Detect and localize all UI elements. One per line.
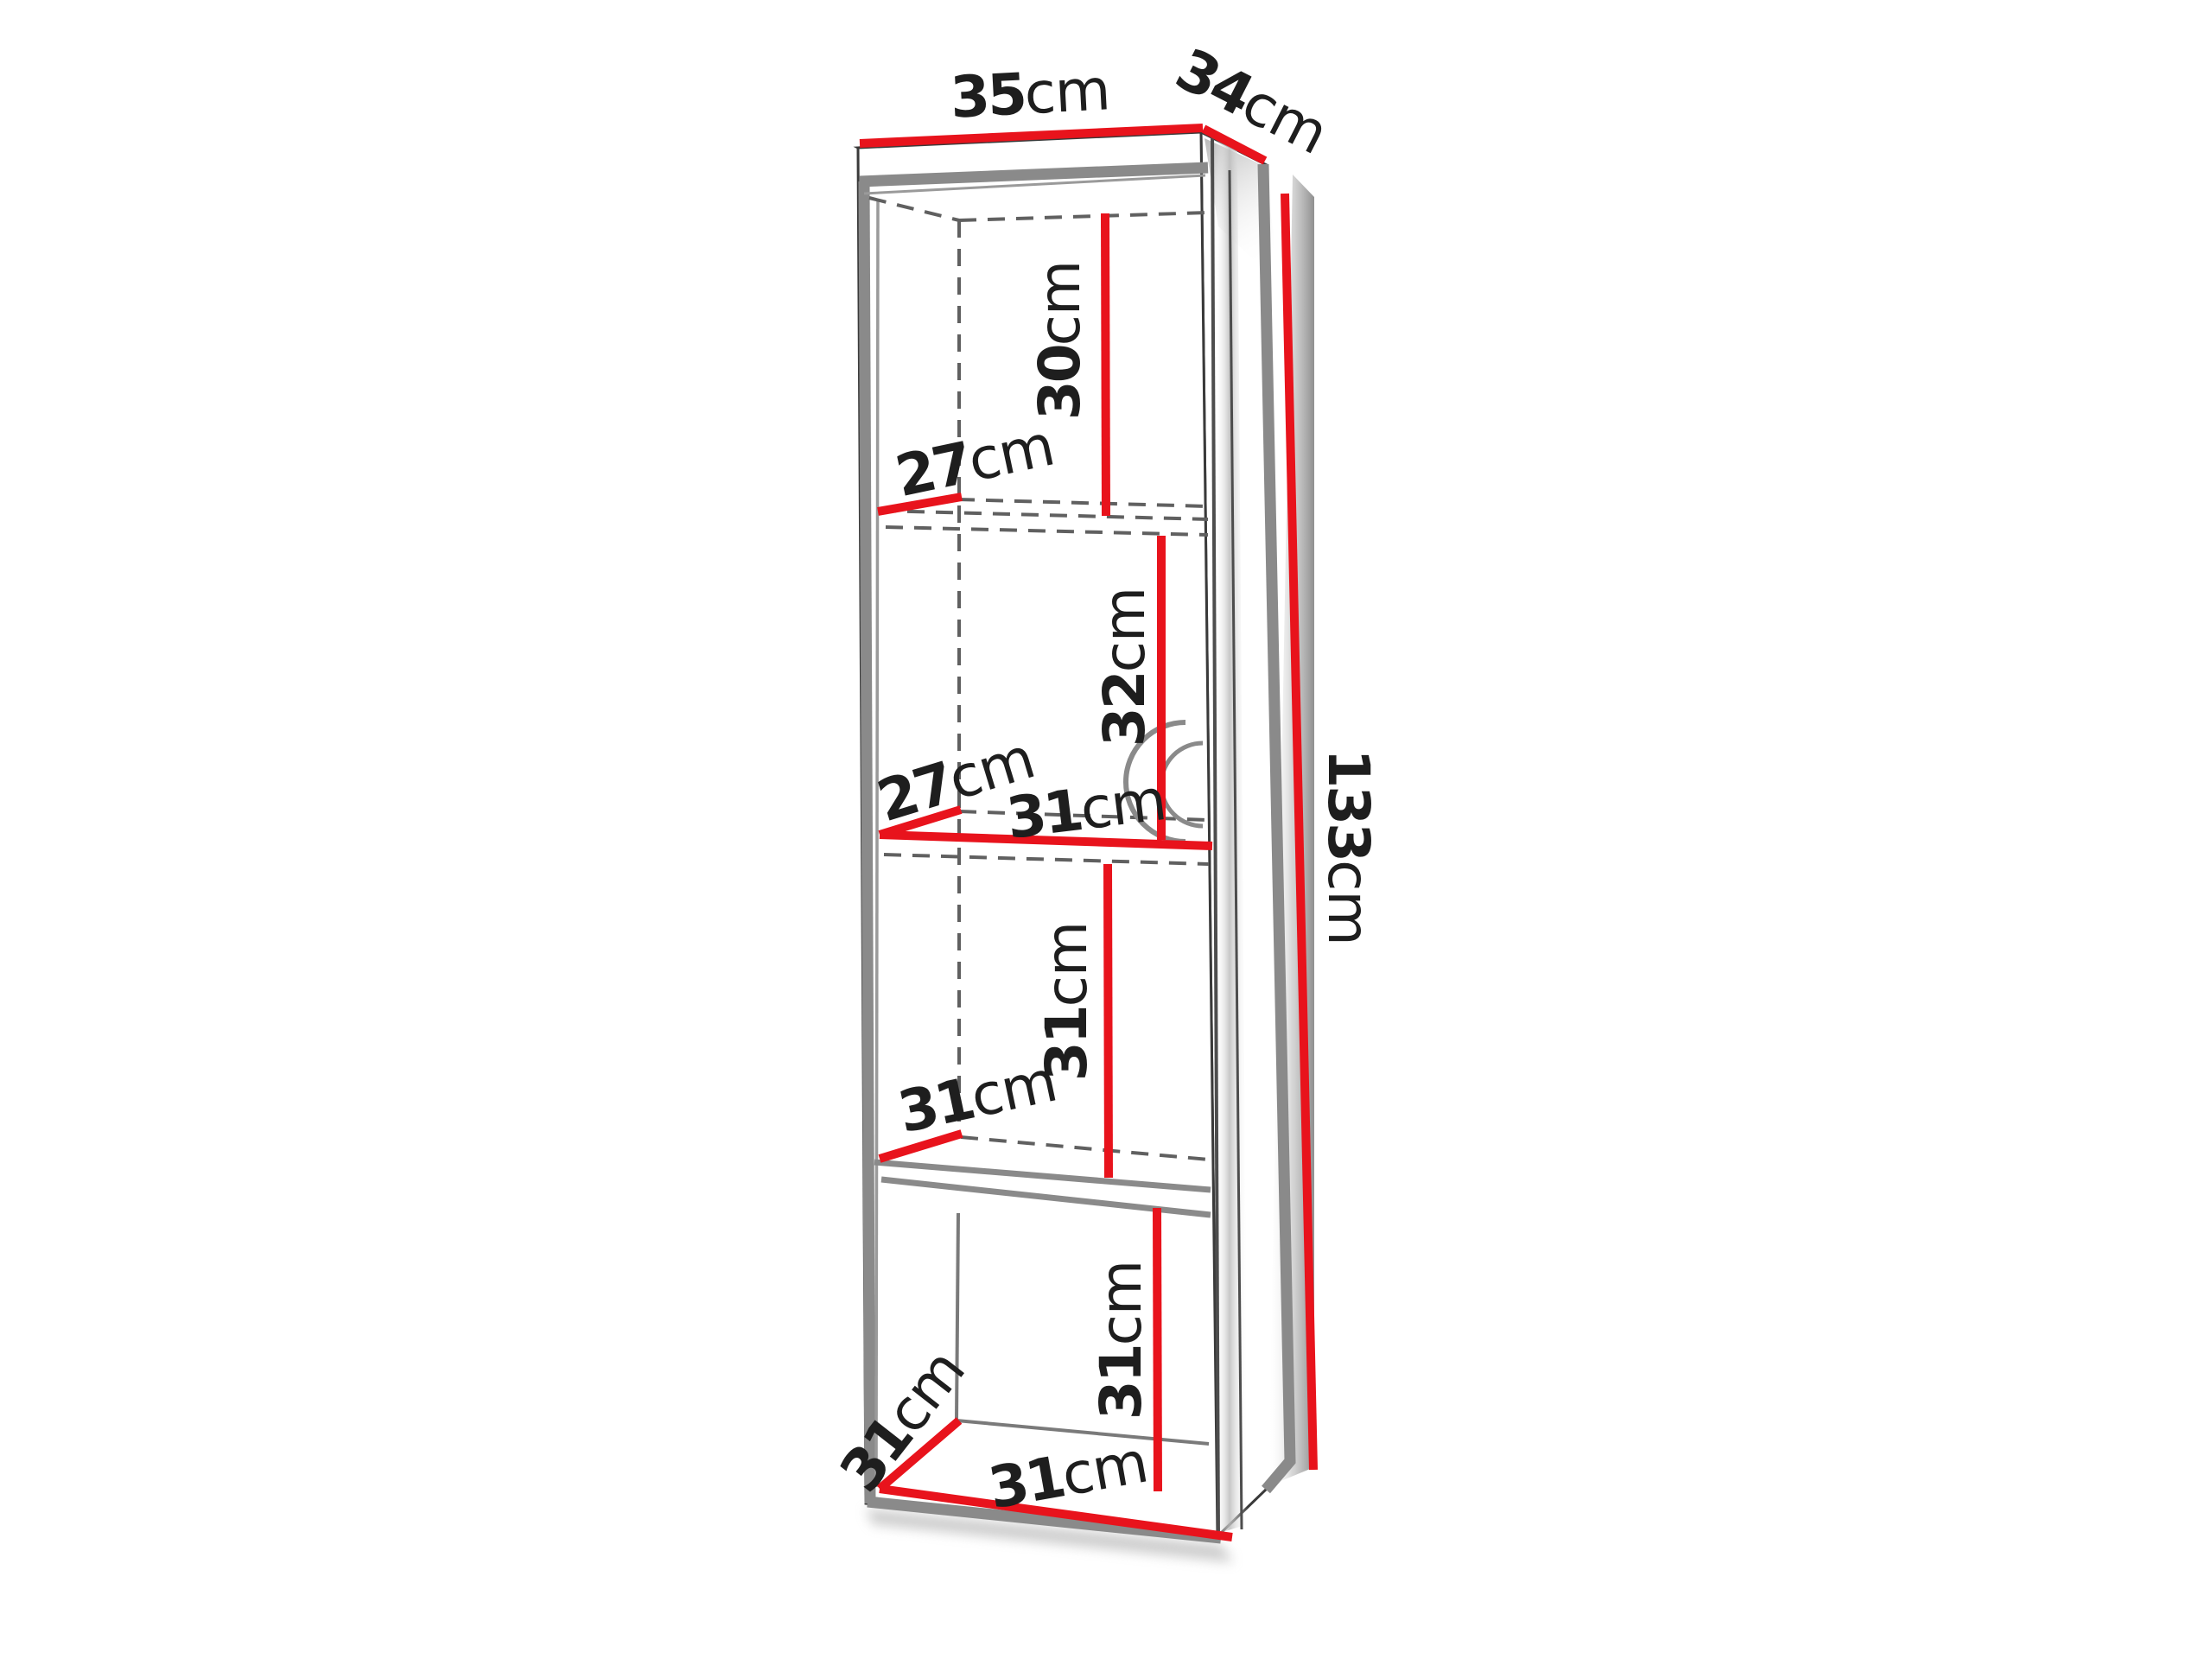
dim-label-height-total: 133cm: [1316, 748, 1382, 944]
left-frame-edge: [864, 181, 870, 1503]
left-inner-edge: [876, 199, 878, 1487]
dim-unit: cm: [1091, 588, 1158, 673]
dim-unit: cm: [1023, 56, 1111, 127]
dim-label-compartment-1: 30cm: [1027, 261, 1093, 420]
dim-value: 35: [949, 60, 1027, 130]
dim-value: 31: [983, 1443, 1068, 1522]
dim-label-compartment-2: 32cm: [1091, 588, 1158, 747]
dim-line-compartment-3: [1108, 864, 1109, 1178]
dim-unit: cm: [1088, 1261, 1154, 1346]
dim-value: 31: [1003, 777, 1085, 852]
dimension-diagram-page: 35cm 34cm 133cm 30cm 27cm 32cm 27cm 31cm…: [0, 0, 2212, 1659]
dim-value: 32: [1091, 672, 1158, 747]
dim-label-width-top: 35cm: [949, 56, 1111, 131]
dim-unit: cm: [1077, 766, 1169, 842]
cabinet-dimension-diagram: 35cm 34cm 133cm 30cm 27cm 32cm 27cm 31cm…: [0, 0, 2212, 1659]
dim-label-compartment-4: 31cm: [1088, 1261, 1154, 1420]
dim-unit: cm: [1027, 261, 1093, 346]
dim-value: 133: [1316, 748, 1382, 860]
dim-line-compartment-4: [1157, 1208, 1158, 1491]
dim-line-compartment-1: [1105, 213, 1106, 516]
dim-unit: cm: [1316, 860, 1382, 945]
dim-value: 31: [1088, 1345, 1154, 1420]
dim-value: 30: [1027, 346, 1093, 420]
dim-unit: cm: [1033, 922, 1100, 1007]
